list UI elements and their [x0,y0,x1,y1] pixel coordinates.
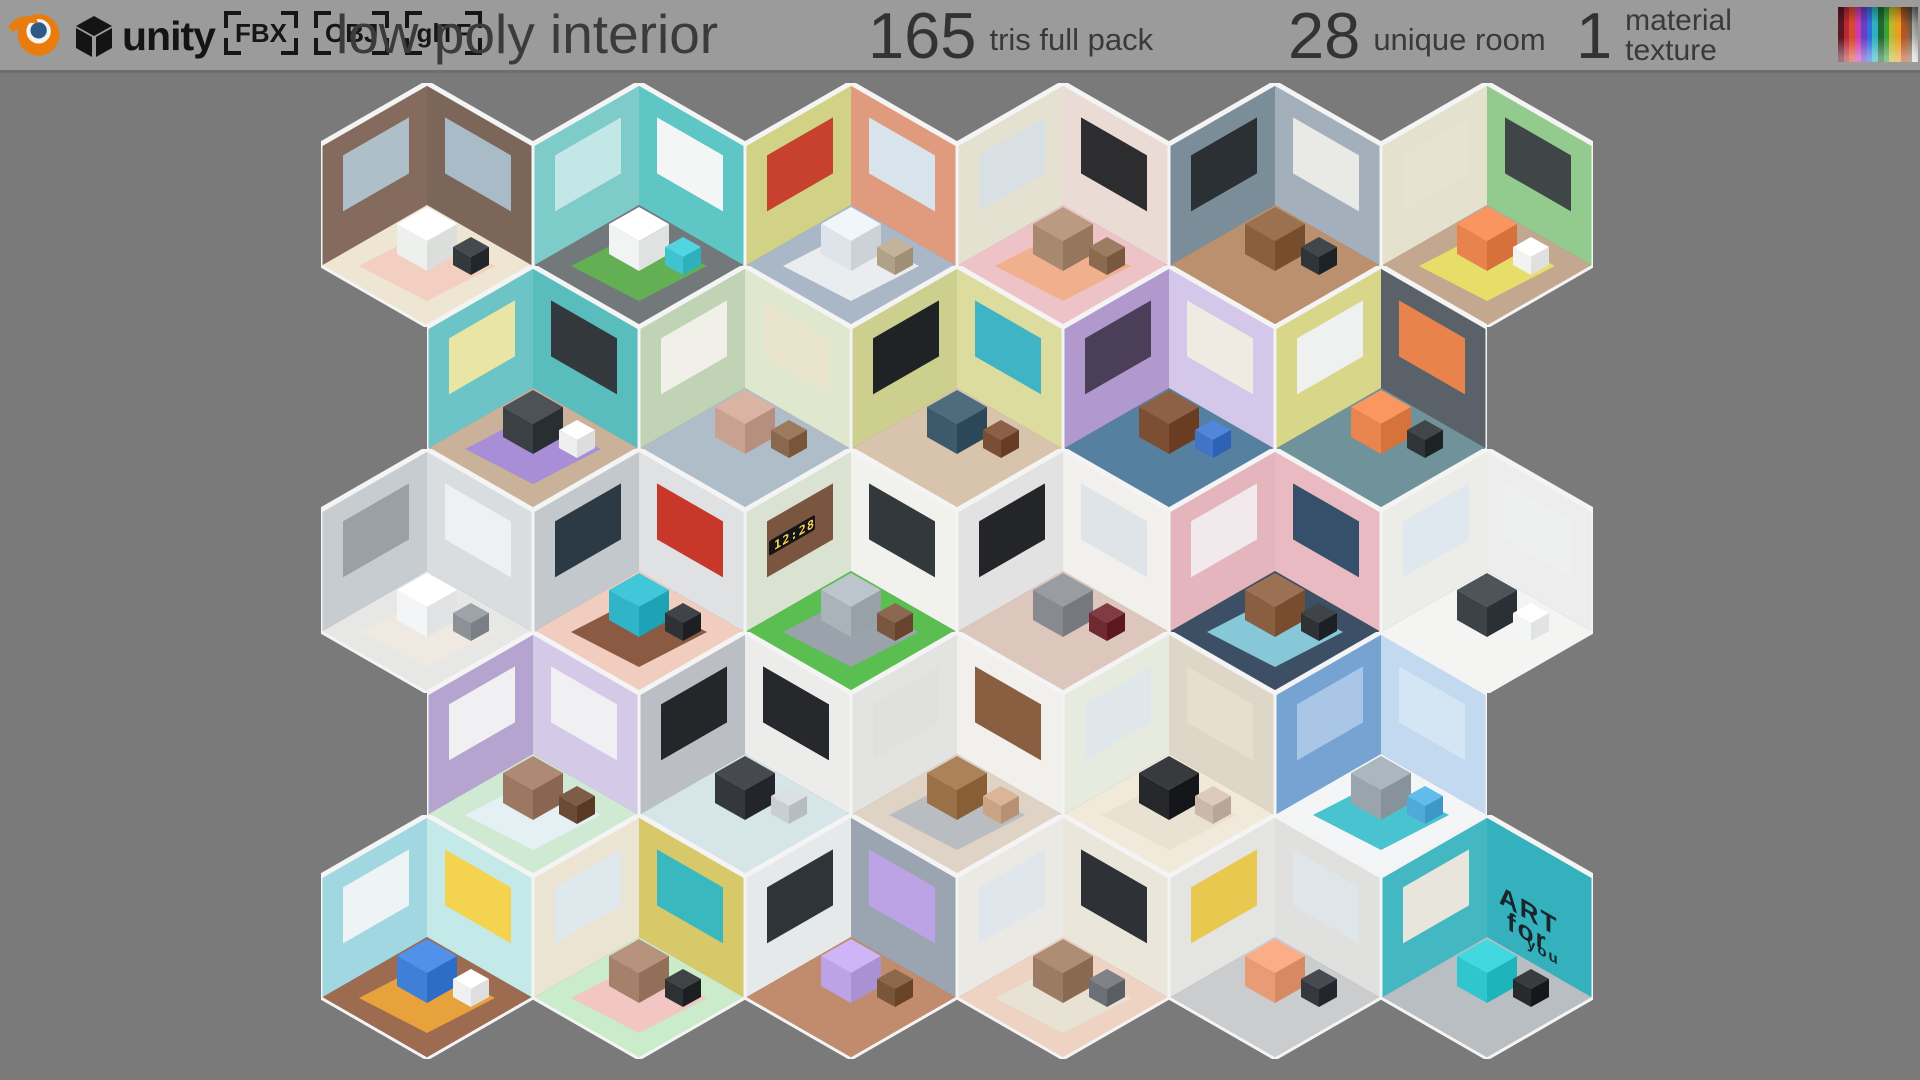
room-tv-living-room [957,815,1169,1059]
hex-room-grid: 12:28ARTforyou [0,0,1920,1080]
room-kids-room [321,815,533,1059]
room-purple-kitchen [745,815,957,1059]
room-gamer-bedroom: ARTforyou [1381,815,1593,1059]
room-home-gym [1169,815,1381,1059]
promo-page: unity FBXOBJglTF low poly interior 165 t… [0,0,1920,1080]
room-cozy-living-room [533,815,745,1059]
